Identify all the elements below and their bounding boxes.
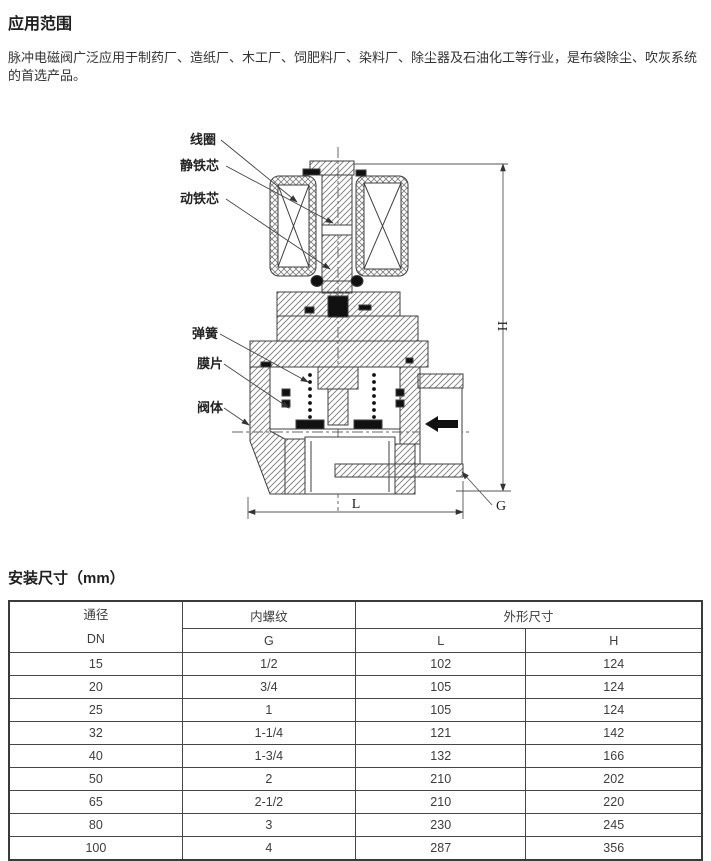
cell-g: 1-3/4 <box>182 745 355 768</box>
cell-dn: 80 <box>9 814 182 837</box>
cell-h: 245 <box>526 814 702 837</box>
table-row: 25 1 105 124 <box>9 699 702 722</box>
col-header-l: L <box>356 629 526 653</box>
cell-g: 1-1/4 <box>182 722 355 745</box>
table-row: 50 2 210 202 <box>9 768 702 791</box>
spring-label: 弹簧 <box>192 326 218 341</box>
col-header-size-group: 外形尺寸 <box>356 601 703 629</box>
table-row: 100 4 287 356 <box>9 837 702 861</box>
diaphragm-label: 膜片 <box>197 356 223 371</box>
cell-l: 132 <box>356 745 526 768</box>
cell-l: 121 <box>356 722 526 745</box>
cell-g: 1 <box>182 699 355 722</box>
cell-h: 166 <box>526 745 702 768</box>
table-row: 40 1-3/4 132 166 <box>9 745 702 768</box>
cell-h: 124 <box>526 653 702 676</box>
valve-body-label: 阀体 <box>197 400 224 415</box>
cell-h: 124 <box>526 676 702 699</box>
cell-l: 105 <box>356 676 526 699</box>
solenoid-assembly <box>270 161 408 293</box>
col-header-g: G <box>182 629 355 653</box>
cell-h: 356 <box>526 837 702 861</box>
cell-dn: 65 <box>9 791 182 814</box>
table-header-row-1: 通径 DN 内螺纹 外形尺寸 <box>9 601 702 629</box>
table-row: 80 3 230 245 <box>9 814 702 837</box>
cell-l: 210 <box>356 768 526 791</box>
cell-dn: 25 <box>9 699 182 722</box>
cell-l: 287 <box>356 837 526 861</box>
cell-g: 4 <box>182 837 355 861</box>
cell-h: 142 <box>526 722 702 745</box>
cell-l: 102 <box>356 653 526 676</box>
cell-g: 2 <box>182 768 355 791</box>
table-row: 32 1-1/4 121 142 <box>9 722 702 745</box>
cell-g: 3 <box>182 814 355 837</box>
dim-label-h: H <box>494 321 509 331</box>
dimensions-section-title: 安装尺寸（mm） <box>8 567 703 588</box>
cell-dn: 100 <box>9 837 182 861</box>
bonnet-section <box>277 292 418 341</box>
coil-label: 线圈 <box>190 132 216 147</box>
cell-l: 230 <box>356 814 526 837</box>
col-header-dn-line1: 通径 <box>10 603 182 627</box>
col-header-thread-group: 内螺纹 <box>182 601 355 629</box>
col-header-h: H <box>526 629 702 653</box>
cell-dn: 50 <box>9 768 182 791</box>
cell-dn: 40 <box>9 745 182 768</box>
installation-dimensions-table: 通径 DN 内螺纹 外形尺寸 G L H 15 1/2 102 124 20 3… <box>8 600 703 861</box>
cell-h: 124 <box>526 699 702 722</box>
cell-h: 202 <box>526 768 702 791</box>
cell-dn: 32 <box>9 722 182 745</box>
valve-cross-section-diagram: H L G 线圈 静铁芯 动铁芯 弹簧 膜片 阀体 <box>170 119 520 539</box>
table-row: 20 3/4 105 124 <box>9 676 702 699</box>
col-header-dn-line2: DN <box>10 627 182 651</box>
cell-dn: 15 <box>9 653 182 676</box>
cell-l: 210 <box>356 791 526 814</box>
application-section-title: 应用范围 <box>8 10 703 34</box>
cell-g: 2-1/2 <box>182 791 355 814</box>
cell-g: 1/2 <box>182 653 355 676</box>
dim-label-g: G <box>496 499 506 514</box>
valve-diagram-svg: H L G 线圈 静铁芯 动铁芯 弹簧 膜片 阀体 <box>170 119 520 539</box>
table-row: 15 1/2 102 124 <box>9 653 702 676</box>
page: 应用范围 脉冲电磁阀广泛应用于制药厂、造纸厂、木工厂、饲肥料厂、染料厂、除尘器及… <box>0 0 711 861</box>
application-description: 脉冲电磁阀广泛应用于制药厂、造纸厂、木工厂、饲肥料厂、染料厂、除尘器及石油化工等… <box>8 49 703 85</box>
cell-l: 105 <box>356 699 526 722</box>
cell-dn: 20 <box>9 676 182 699</box>
static-core-label: 静铁芯 <box>180 158 219 173</box>
table-row: 65 2-1/2 210 220 <box>9 791 702 814</box>
moving-core-label: 动铁芯 <box>180 191 219 206</box>
col-header-dn: 通径 DN <box>9 601 182 653</box>
cell-h: 220 <box>526 791 702 814</box>
cell-g: 3/4 <box>182 676 355 699</box>
valve-body-section <box>250 341 463 494</box>
dim-label-l: L <box>352 497 361 512</box>
